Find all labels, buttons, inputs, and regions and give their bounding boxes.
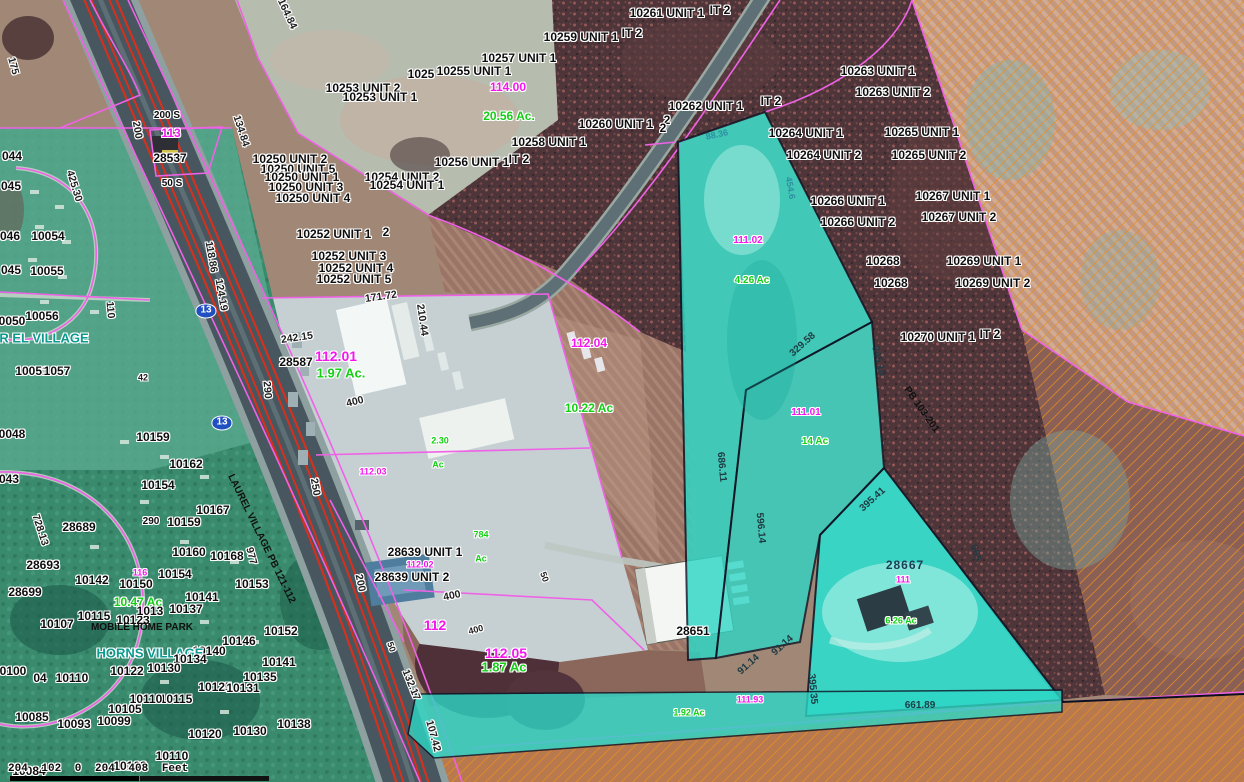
map-label: 044 [2, 150, 22, 162]
map-label: 1057 [44, 365, 71, 377]
map-label: 28693 [26, 559, 59, 571]
map-label: 10266 UNIT 1 [811, 195, 886, 207]
map-label: IT 2 [710, 4, 731, 16]
map-label: 454.6 [784, 176, 797, 200]
map-label: 6.26 Ac [885, 617, 916, 626]
map-label: 10055 [30, 265, 63, 277]
map-label: 10263 UNIT 1 [841, 65, 916, 77]
map-label: 10167 [196, 504, 229, 516]
map-label: 395.35 [806, 673, 819, 704]
map-label: 10250 UNIT 4 [276, 192, 351, 204]
map-label: 10252 UNIT 1 [297, 228, 372, 240]
map-label: 2 [660, 122, 667, 134]
map-label: 10153 [235, 578, 268, 590]
map-label: 50 [385, 641, 397, 653]
map-label: 10159 [136, 431, 169, 443]
map-label: 10255 UNIT 1 [437, 65, 512, 77]
map-label: 10142 [75, 574, 108, 586]
map-label: 10254 UNIT 1 [370, 179, 445, 191]
map-label: 10122 [110, 665, 143, 677]
map-label: 111.01 [791, 408, 820, 418]
scale-bar-text: 204 102 0 204 408 Feet [8, 764, 188, 775]
map-label: 111.02 [733, 236, 762, 246]
map-label: 290 [143, 517, 160, 527]
map-label: R EL VILLAGE [0, 332, 89, 345]
map-label: 10258 UNIT 1 [512, 136, 587, 148]
map-label: 10154 [158, 568, 191, 580]
map-label: 10259 UNIT 1 [544, 31, 619, 43]
route-13-shield: 13 [211, 416, 232, 431]
map-label: 91.14 [736, 653, 761, 677]
route-13-shield: 13 [195, 304, 216, 319]
map-label: 28587 [279, 356, 312, 368]
map-label: 1.97 Ac. [317, 367, 366, 380]
map-label: 14 Ac [802, 437, 828, 447]
map-label: 977 [244, 546, 259, 566]
map-label: 175 [6, 56, 21, 76]
map-label: 425.30 [64, 169, 83, 203]
map-label: 171.72 [364, 290, 397, 305]
map-label: 10150 [119, 578, 152, 590]
map-label: 28639 UNIT 2 [375, 571, 450, 583]
map-label: 28699 [8, 586, 41, 598]
map-label: 045 [1, 180, 21, 192]
map-label: 42 [138, 374, 148, 383]
map-label: 10141 [262, 656, 295, 668]
scale-bar [10, 776, 268, 781]
map-label: 784 [473, 531, 488, 540]
map-label: 10.22 Ac [565, 402, 613, 414]
map-label: IT 2 [509, 153, 530, 165]
map-label: 10130 [233, 725, 266, 737]
map-label: Ac [432, 461, 444, 470]
map-label: 290 [261, 381, 273, 399]
map-label: 112.03 [359, 468, 386, 477]
map-label: 043 [0, 473, 19, 485]
map-label: 1025 [408, 68, 435, 80]
map-label: 107.42 [424, 719, 442, 753]
map-label: PB 103-201 [902, 385, 941, 434]
map-label: IT 2 [980, 328, 1001, 340]
map-label: 04 [33, 672, 46, 684]
map-label: 10093 [57, 718, 90, 730]
map-label: IT 2 [761, 95, 782, 107]
map-label: 10160 [172, 546, 205, 558]
map-label: 4.26 Ac [735, 276, 770, 286]
map-label: 200 S [154, 111, 180, 121]
map-label: 10054 [31, 230, 64, 242]
map-label: 10265 UNIT 2 [892, 149, 967, 161]
map-label: 164.84 [275, 0, 298, 31]
map-label: 10256 UNIT 1 [435, 156, 510, 168]
map-label: 10120 [188, 728, 221, 740]
map-label: 28689 [62, 521, 95, 533]
map-label: 10265 UNIT 1 [885, 126, 960, 138]
map-label: 20.56 Ac. [483, 110, 535, 122]
map-label: 345.15 [869, 345, 887, 377]
label-layer: 10261 UNIT 1IT 210259 UNIT 1IT 210257 UN… [0, 0, 1244, 782]
map-label: 0100 [0, 665, 26, 677]
map-label: 045 [1, 264, 21, 276]
map-label: 10159 [167, 516, 200, 528]
map-label: 10137 [169, 603, 202, 615]
map-label: 10267 UNIT 1 [916, 190, 991, 202]
map-label: 112 [424, 618, 447, 632]
map-label: 112.01 [315, 349, 357, 363]
map-label: 112.02 [406, 561, 433, 570]
map-label: 10099 [97, 715, 130, 727]
map-label: 2.30 [431, 437, 449, 446]
map-label: 0048 [0, 428, 25, 440]
map-label: 686.11 [715, 452, 728, 483]
map-label: 10262 UNIT 1 [669, 100, 744, 112]
map-label: 28639 UNIT 1 [388, 546, 463, 558]
map-label: 10257 UNIT 1 [482, 52, 557, 64]
map-label: 88.36 [705, 128, 729, 141]
map-label: 10115 [78, 610, 111, 622]
map-label: 10131 [226, 682, 259, 694]
map-label: 10152 [264, 625, 297, 637]
map-label: 400 [345, 395, 365, 409]
map-label: 10260 UNIT 1 [579, 118, 654, 130]
map-label: MOBILE HOME PARK [91, 623, 193, 633]
map-label: 112.04 [571, 337, 607, 349]
map-label: 1.87 Ac [481, 661, 526, 674]
map-label: 661.89 [905, 701, 936, 711]
map-label: 114.00 [490, 81, 526, 93]
map-label: 596.14 [754, 512, 767, 543]
map-label: 395.41 [858, 486, 887, 514]
map-label: 10253 UNIT 1 [343, 91, 418, 103]
map-label: 10252 UNIT 5 [317, 273, 392, 285]
map-label: 10162 [169, 458, 202, 470]
map-label: 400 [442, 589, 461, 603]
map-label: 110 [104, 301, 116, 319]
map-label: 10146 [222, 635, 255, 647]
map-label: 10138 [277, 718, 310, 730]
map-label: 10268 [874, 277, 907, 289]
map-label: 10115 [160, 693, 193, 705]
map-label: 118.86 [203, 241, 219, 274]
map-label: 28537 [153, 152, 186, 164]
map-label: 242.15 [280, 331, 313, 346]
map-label: 200 [353, 573, 367, 592]
map-label: 132.17 [400, 668, 422, 702]
map-label: 210.44 [415, 303, 430, 336]
map-label: 113 [161, 127, 180, 139]
map-label: 10261 UNIT 1 [630, 7, 705, 19]
map-label: 10267 UNIT 2 [922, 211, 997, 223]
map-label: 91.14 [770, 634, 795, 658]
map-label: 10270 UNIT 1 [901, 331, 976, 343]
map-label: 665 [968, 544, 982, 563]
map-label: 0050 [0, 315, 25, 327]
map-label: 10266 UNIT 2 [821, 216, 896, 228]
map-label: 10268 [866, 255, 899, 267]
map-label: 111 [896, 576, 910, 585]
map-label: 1.92 Ac [673, 709, 704, 718]
map-label: 10110 [156, 750, 189, 762]
map-label: IT 2 [622, 27, 643, 39]
map-label: 728.13 [30, 513, 50, 547]
map-label: 10154 [141, 479, 174, 491]
map-label: 10085 [15, 711, 48, 723]
map-label: 28667 [886, 559, 924, 571]
map-label: 50 [538, 571, 550, 583]
map-label: 329.58 [788, 331, 817, 359]
map-label: 10264 UNIT 1 [769, 127, 844, 139]
map-viewport[interactable]: 10261 UNIT 1IT 210259 UNIT 1IT 210257 UN… [0, 0, 1244, 782]
map-label: Ac [475, 555, 487, 564]
map-label: 28651 [676, 625, 709, 637]
map-label: 2 [383, 226, 390, 238]
map-label: 400 [468, 624, 485, 637]
map-label: 200 [130, 120, 143, 139]
map-label: 10269 UNIT 2 [956, 277, 1031, 289]
map-label: 10263 UNIT 2 [856, 86, 931, 98]
map-label: 1013 [137, 605, 164, 617]
map-label: 10168 [210, 550, 243, 562]
map-label: 10056 [25, 310, 58, 322]
map-label: 111.93 [737, 696, 764, 705]
map-label: 10107 [40, 618, 73, 630]
map-label: 250 [308, 477, 321, 496]
map-label: 10110 [56, 672, 89, 684]
map-label: 134.84 [231, 114, 251, 148]
map-label: 50 S [162, 179, 183, 189]
map-label: 10269 UNIT 1 [947, 255, 1022, 267]
map-label: 046 [0, 230, 20, 242]
map-label: 112.05 [485, 646, 527, 660]
map-label: 10130 [147, 662, 180, 674]
map-label: 10264 UNIT 2 [787, 149, 862, 161]
